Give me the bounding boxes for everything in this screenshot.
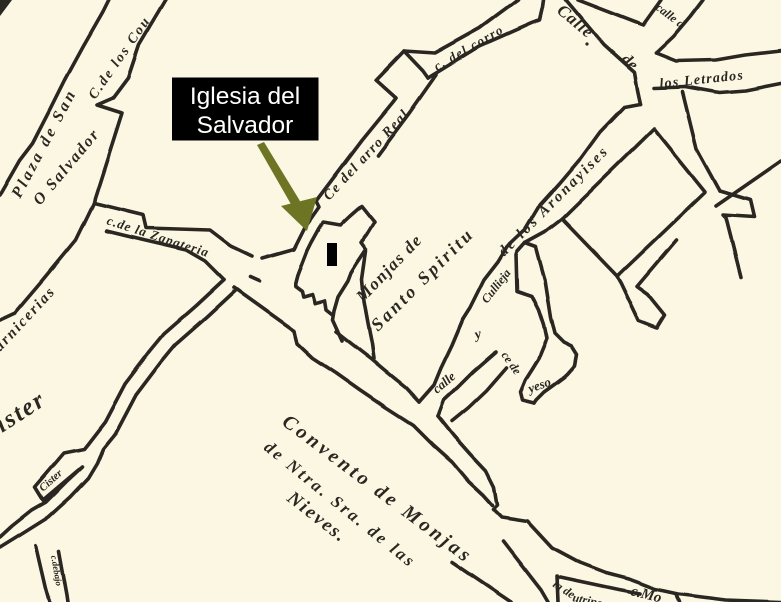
svg-text:Salvador: Salvador <box>197 112 294 139</box>
svg-text:Iglesia del: Iglesia del <box>190 83 300 110</box>
